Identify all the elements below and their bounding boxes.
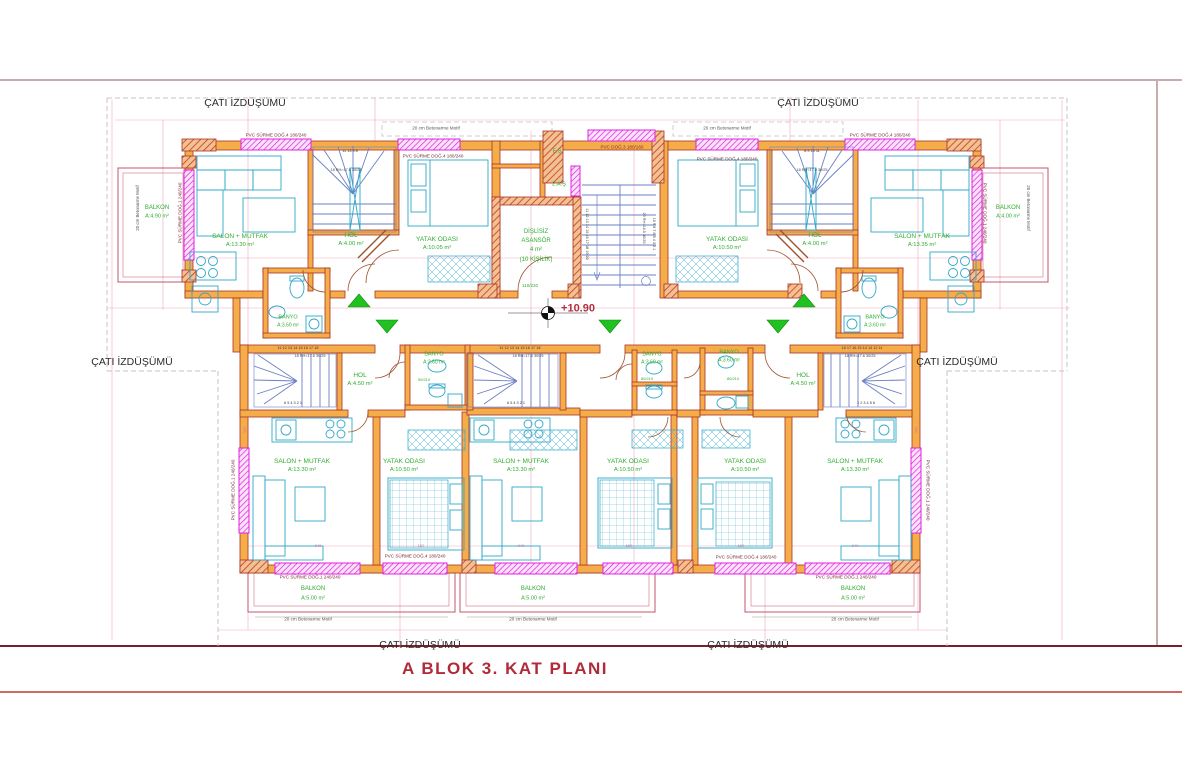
walls	[185, 141, 981, 573]
plan-title: A BLOK 3. KAT PLANI	[402, 659, 608, 679]
door-swings	[303, 230, 866, 437]
sheet-frame	[0, 80, 1182, 692]
floorplan-drawing	[0, 0, 1182, 773]
floorplan-canvas: ÇATI İZDÜŞÜMÜÇATI İZDÜŞÜMÜÇATI İZDÜŞÜMÜÇ…	[0, 0, 1182, 773]
entrance-arrows	[348, 294, 815, 333]
elevation-marker	[508, 298, 588, 328]
